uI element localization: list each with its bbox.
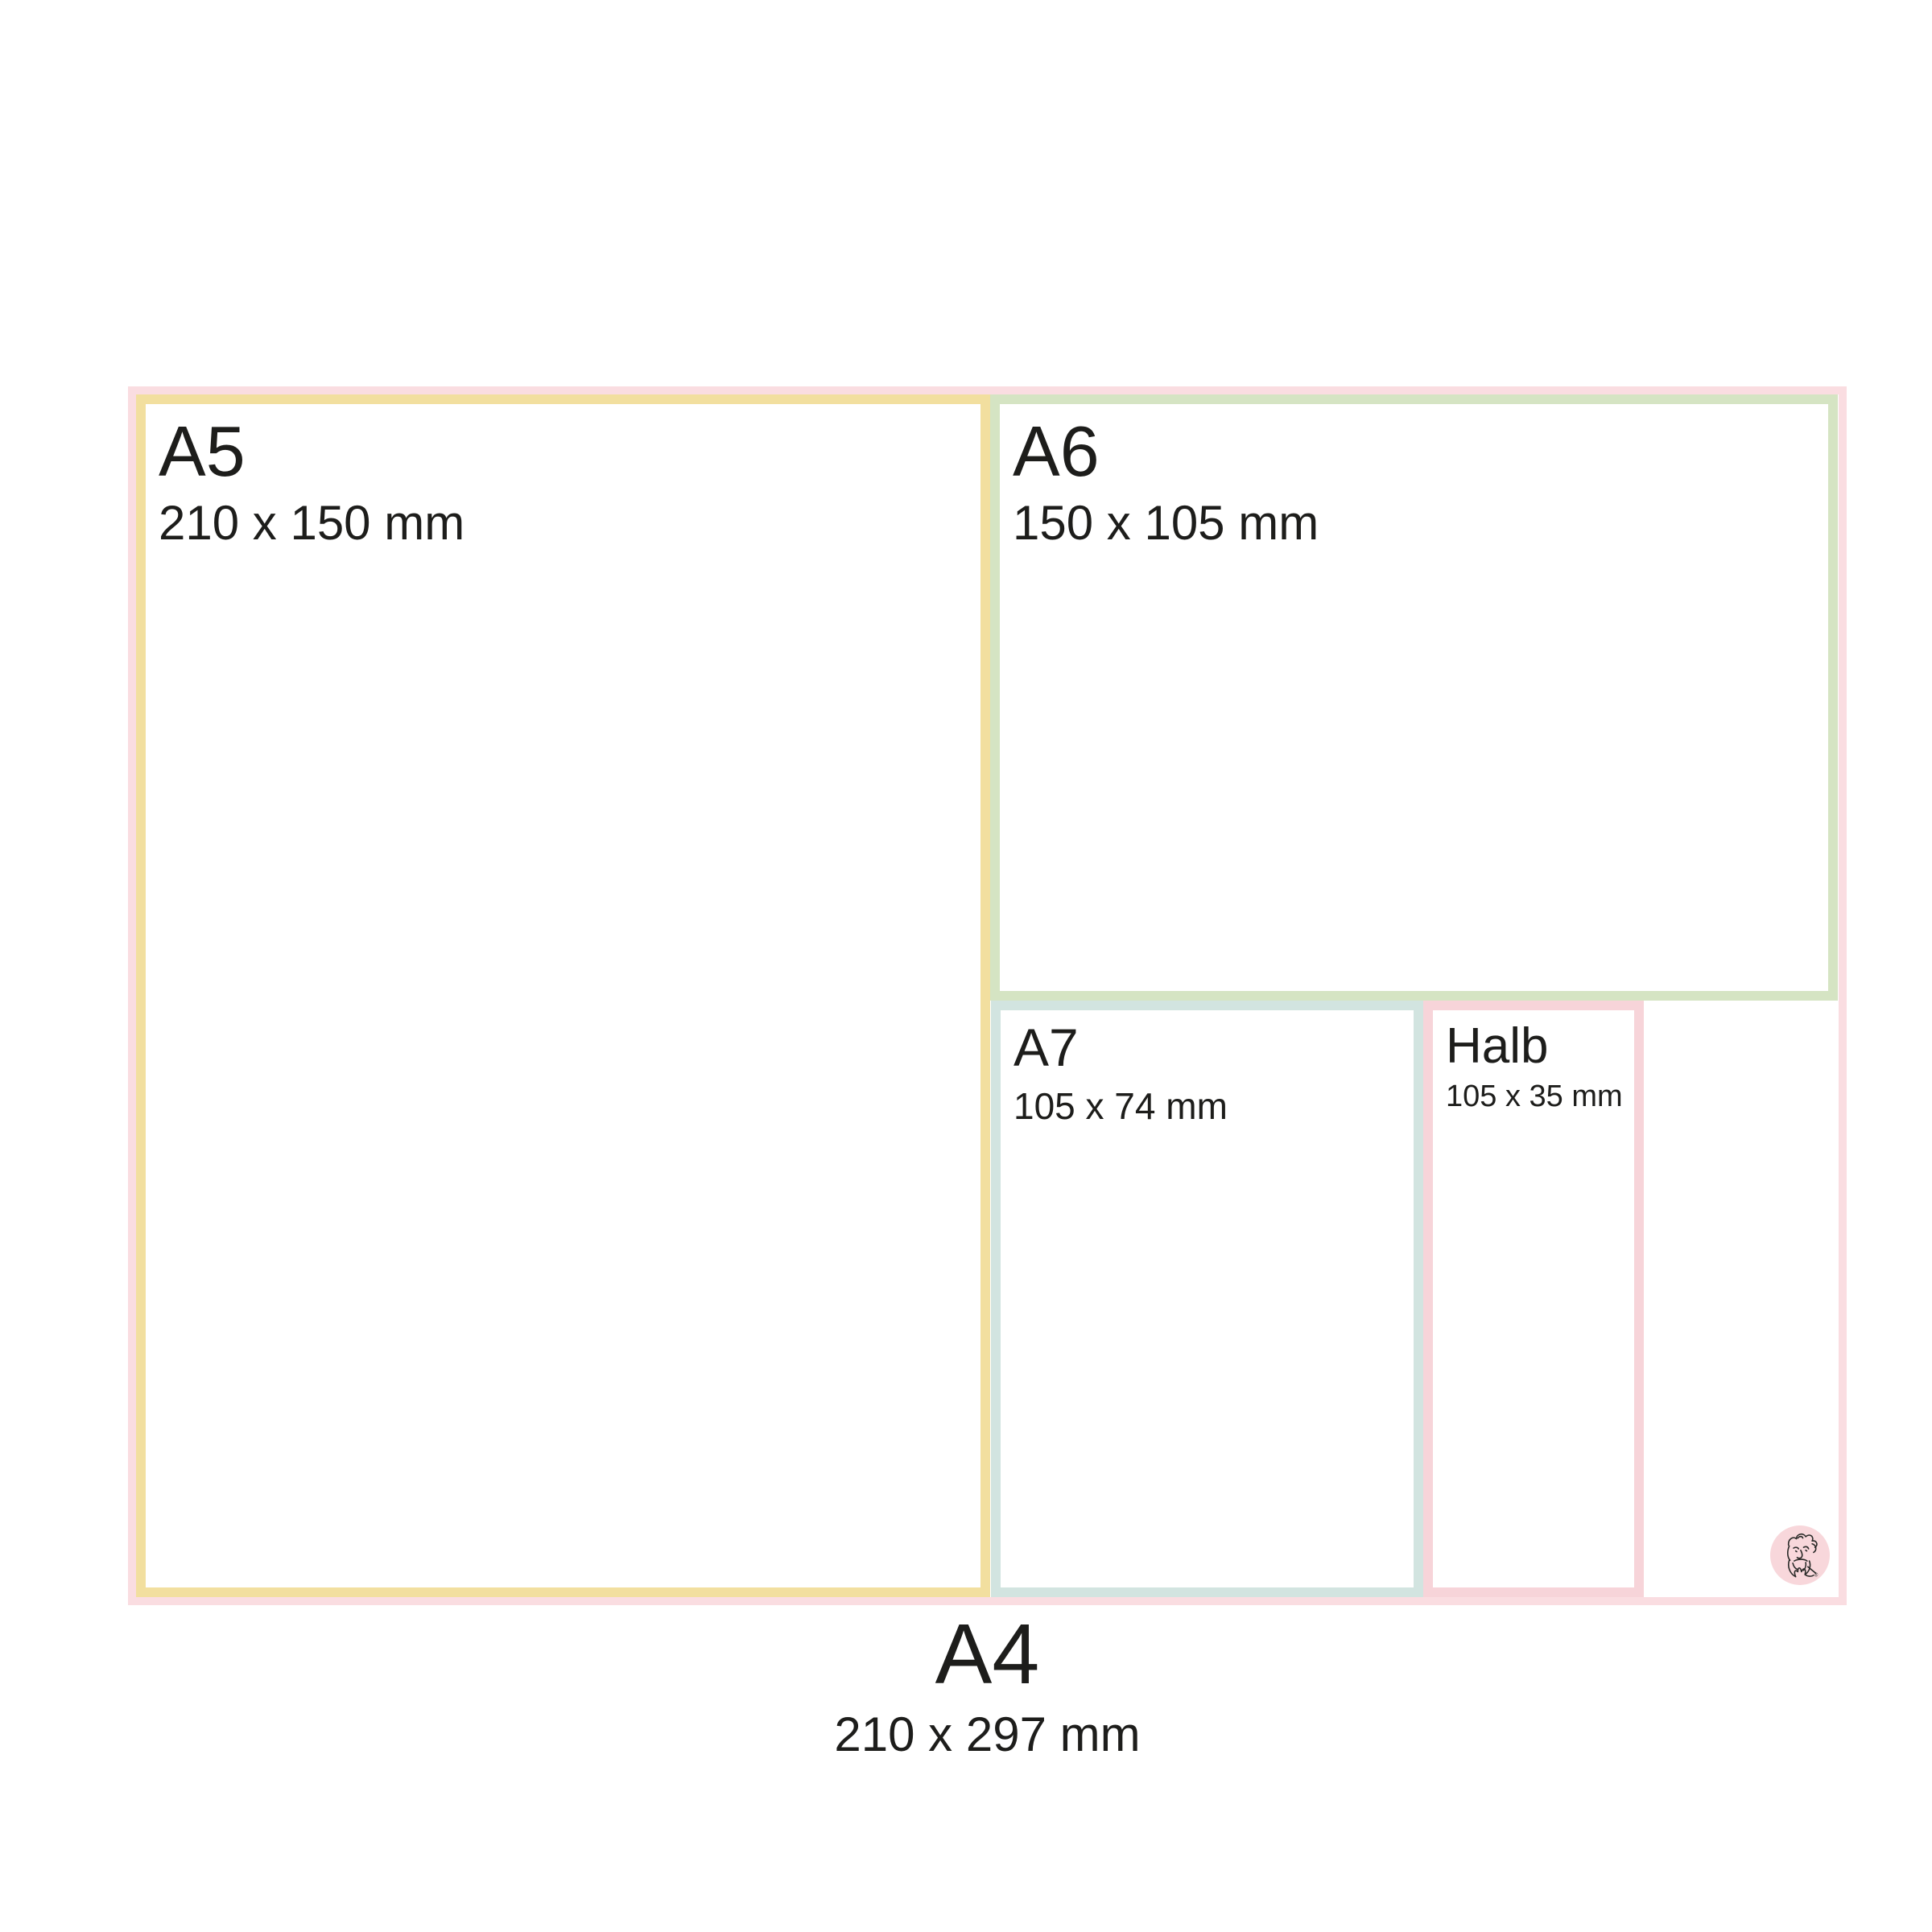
a4-caption-block: A4 210 x 297 mm [128,1612,1847,1761]
paper-sizes-diagram: A5 210 x 150 mm A6 150 x 105 mm A7 105 x… [0,0,1932,1932]
halb-sheet: Halb 105 x 35 mm [1423,1001,1644,1597]
a6-label-block: A6 150 x 105 mm [1000,404,1828,550]
a4-size-title: A4 [128,1612,1847,1697]
a5-size-title: A5 [159,412,980,492]
bearded-man-logo-icon: ® [1774,1529,1826,1581]
a4-size-dimensions: 210 x 297 mm [128,1708,1847,1761]
a5-sheet: A5 210 x 150 mm [136,394,990,1597]
halb-size-title: Halb [1446,1018,1634,1074]
halb-size-dimensions: 105 x 35 mm [1446,1080,1634,1114]
a7-sheet: A7 105 x 74 mm [991,1001,1423,1597]
halb-label-block: Halb 105 x 35 mm [1433,1010,1634,1114]
registered-trademark: ® [1814,1573,1818,1579]
a5-label-block: A5 210 x 150 mm [146,404,980,550]
a7-label-block: A7 105 x 74 mm [1001,1010,1414,1127]
brand-logo-badge: ® [1770,1525,1830,1585]
a7-size-dimensions: 105 x 74 mm [1013,1086,1414,1127]
a6-size-dimensions: 150 x 105 mm [1013,497,1828,550]
a6-size-title: A6 [1013,412,1828,492]
a5-size-dimensions: 210 x 150 mm [159,497,980,550]
a7-size-title: A7 [1013,1018,1414,1078]
a6-sheet: A6 150 x 105 mm [990,394,1838,1001]
